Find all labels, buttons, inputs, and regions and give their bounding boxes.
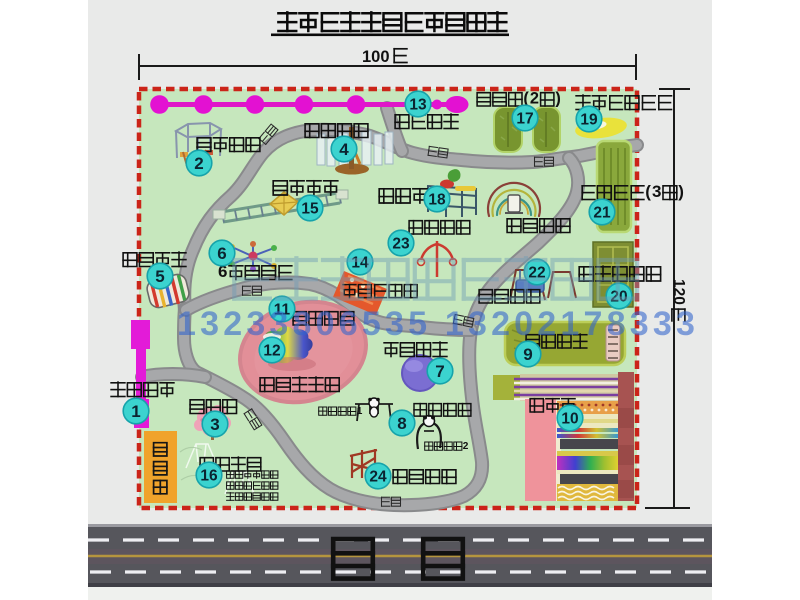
svg-text:23: 23 — [392, 236, 410, 253]
svg-text:17: 17 — [516, 111, 533, 128]
svg-text:10: 10 — [561, 411, 578, 428]
svg-text:120: 120 — [670, 279, 687, 305]
svg-text:4: 4 — [339, 140, 349, 159]
svg-text:2: 2 — [194, 154, 203, 173]
svg-text:8: 8 — [397, 414, 406, 433]
svg-text:1: 1 — [131, 402, 140, 421]
svg-text:19: 19 — [580, 112, 598, 129]
svg-text:14: 14 — [351, 255, 369, 272]
svg-text:21: 21 — [593, 205, 611, 222]
svg-text:13: 13 — [409, 97, 427, 114]
svg-text:6: 6 — [217, 244, 226, 263]
svg-text:16: 16 — [200, 468, 218, 485]
svg-text:): ) — [555, 90, 560, 108]
svg-text:18: 18 — [428, 192, 446, 209]
svg-text:): ) — [678, 182, 684, 201]
svg-text:12: 12 — [263, 343, 280, 360]
svg-text:5: 5 — [155, 267, 164, 286]
svg-text:100: 100 — [362, 48, 390, 66]
svg-text:2: 2 — [530, 90, 539, 108]
svg-text:13233806535 13202178333: 13233806535 13202178333 — [177, 305, 699, 343]
svg-text:(: ( — [645, 182, 651, 201]
svg-text:3: 3 — [652, 182, 661, 201]
svg-text:3: 3 — [210, 415, 219, 434]
svg-text:2: 2 — [463, 441, 469, 452]
svg-text:24: 24 — [369, 469, 387, 486]
svg-text:9: 9 — [523, 345, 532, 364]
svg-text:1: 1 — [357, 406, 363, 417]
svg-text:7: 7 — [435, 362, 444, 381]
svg-text:15: 15 — [301, 201, 319, 218]
